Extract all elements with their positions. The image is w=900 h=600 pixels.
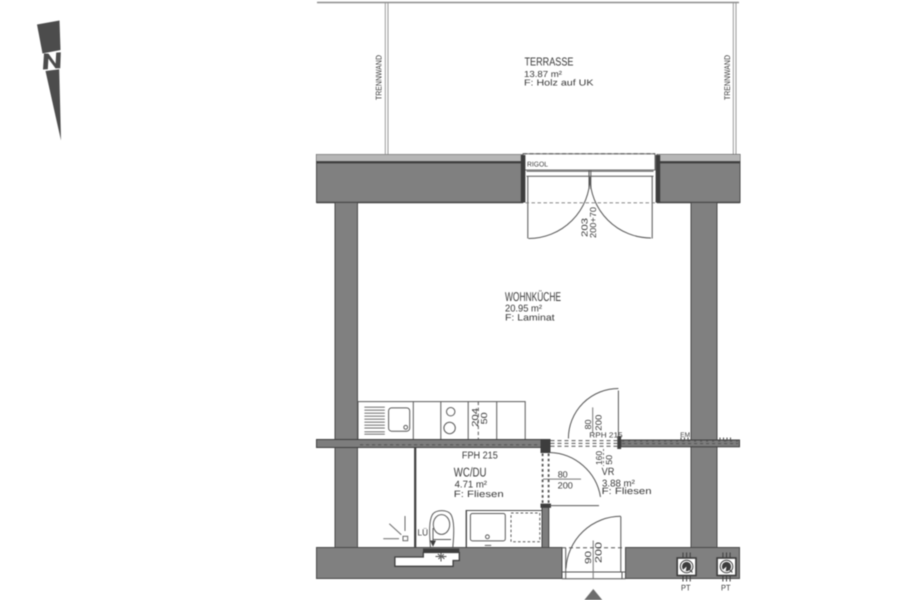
svg-text:F: Laminat: F: Laminat [505,312,555,322]
svg-text:TRENNWAND: TRENNWAND [375,55,384,100]
svg-text:RPH 215: RPH 215 [589,431,622,440]
svg-text:PT: PT [721,584,731,593]
svg-text:80: 80 [583,419,593,429]
svg-text:F: Fliesen: F: Fliesen [602,486,652,496]
svg-text:80: 80 [558,470,568,480]
svg-text:50: 50 [479,412,489,424]
svg-text:200: 200 [558,480,573,490]
svg-text:LÜ: LÜ [418,528,429,538]
svg-text:PT: PT [681,584,691,593]
svg-text:TRENNWAND: TRENNWAND [723,55,732,100]
svg-text:TERRASSE: TERRASSE [525,55,574,68]
svg-text:VR: VR [602,466,615,478]
svg-text:200: 200 [594,415,604,431]
svg-text:F: Holz auf UK: F: Holz auf UK [524,78,594,88]
svg-text:90: 90 [583,551,593,564]
svg-text:RIGOL: RIGOL [527,161,548,168]
svg-text:F: Fliesen: F: Fliesen [454,489,504,499]
svg-text:160: 160 [594,451,604,465]
svg-text:EM: EM [680,432,690,439]
svg-text:WC/DU: WC/DU [454,465,487,480]
svg-text:WOHNKÜCHE: WOHNKÜCHE [505,289,561,304]
svg-text:200+70: 200+70 [588,207,598,238]
svg-text:200: 200 [594,542,604,563]
svg-text:FPH 215: FPH 215 [462,450,498,461]
svg-text:50: 50 [604,455,614,465]
